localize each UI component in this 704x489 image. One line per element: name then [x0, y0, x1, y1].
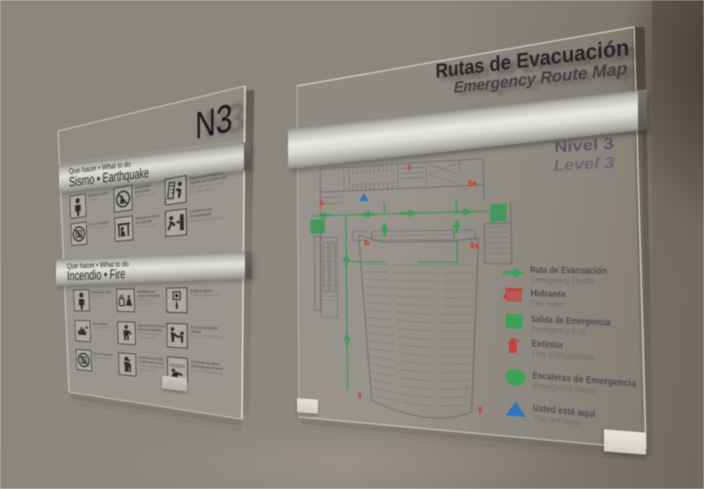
svg-text:Fire Hose: Fire Hose: [531, 299, 565, 310]
svg-text:Emergency Route: Emergency Route: [530, 276, 595, 287]
svg-text:Ruta de Evacuación: Ruta de Evacuación: [530, 264, 607, 277]
svg-text:Emergency Exit: Emergency Exit: [531, 325, 586, 337]
svg-text:Hidrante: Hidrante: [530, 287, 566, 300]
svg-text:Fire Extinguisher: Fire Extinguisher: [532, 349, 596, 363]
